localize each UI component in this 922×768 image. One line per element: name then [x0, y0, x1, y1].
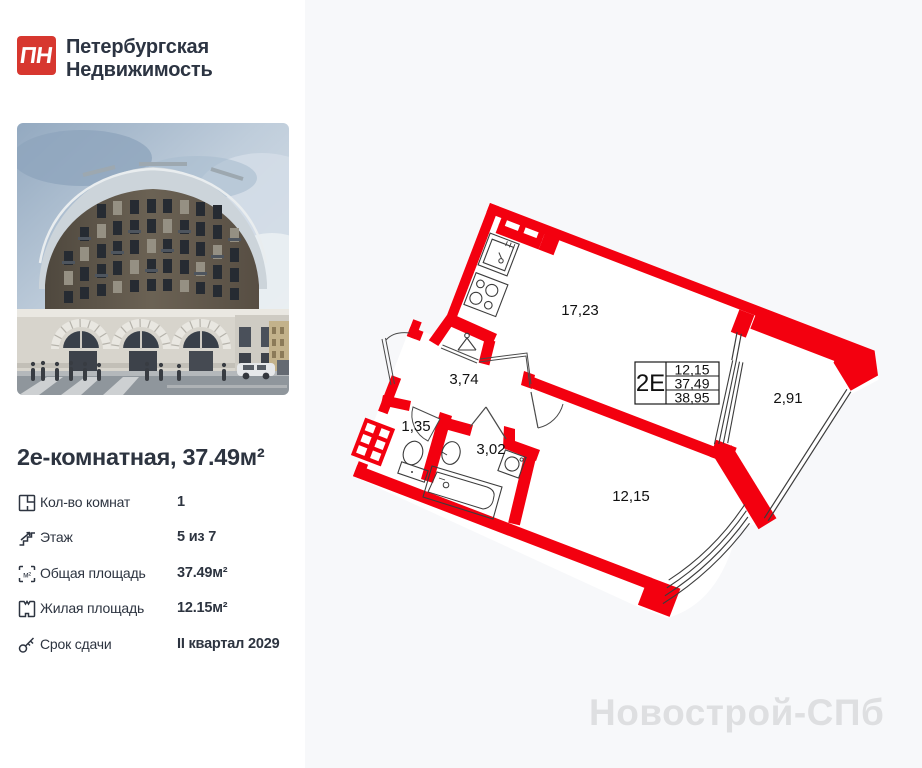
- svg-text:17,23: 17,23: [561, 302, 599, 319]
- svg-text:12,15: 12,15: [612, 488, 650, 505]
- svg-text:2Е: 2Е: [636, 370, 665, 397]
- svg-text:38,95: 38,95: [674, 390, 709, 406]
- svg-text:3,02: 3,02: [476, 441, 505, 458]
- svg-text:м²: м²: [23, 571, 31, 580]
- svg-text:1,35: 1,35: [401, 418, 430, 435]
- svg-text:2,91: 2,91: [773, 390, 802, 407]
- svg-text:3,74: 3,74: [449, 371, 478, 388]
